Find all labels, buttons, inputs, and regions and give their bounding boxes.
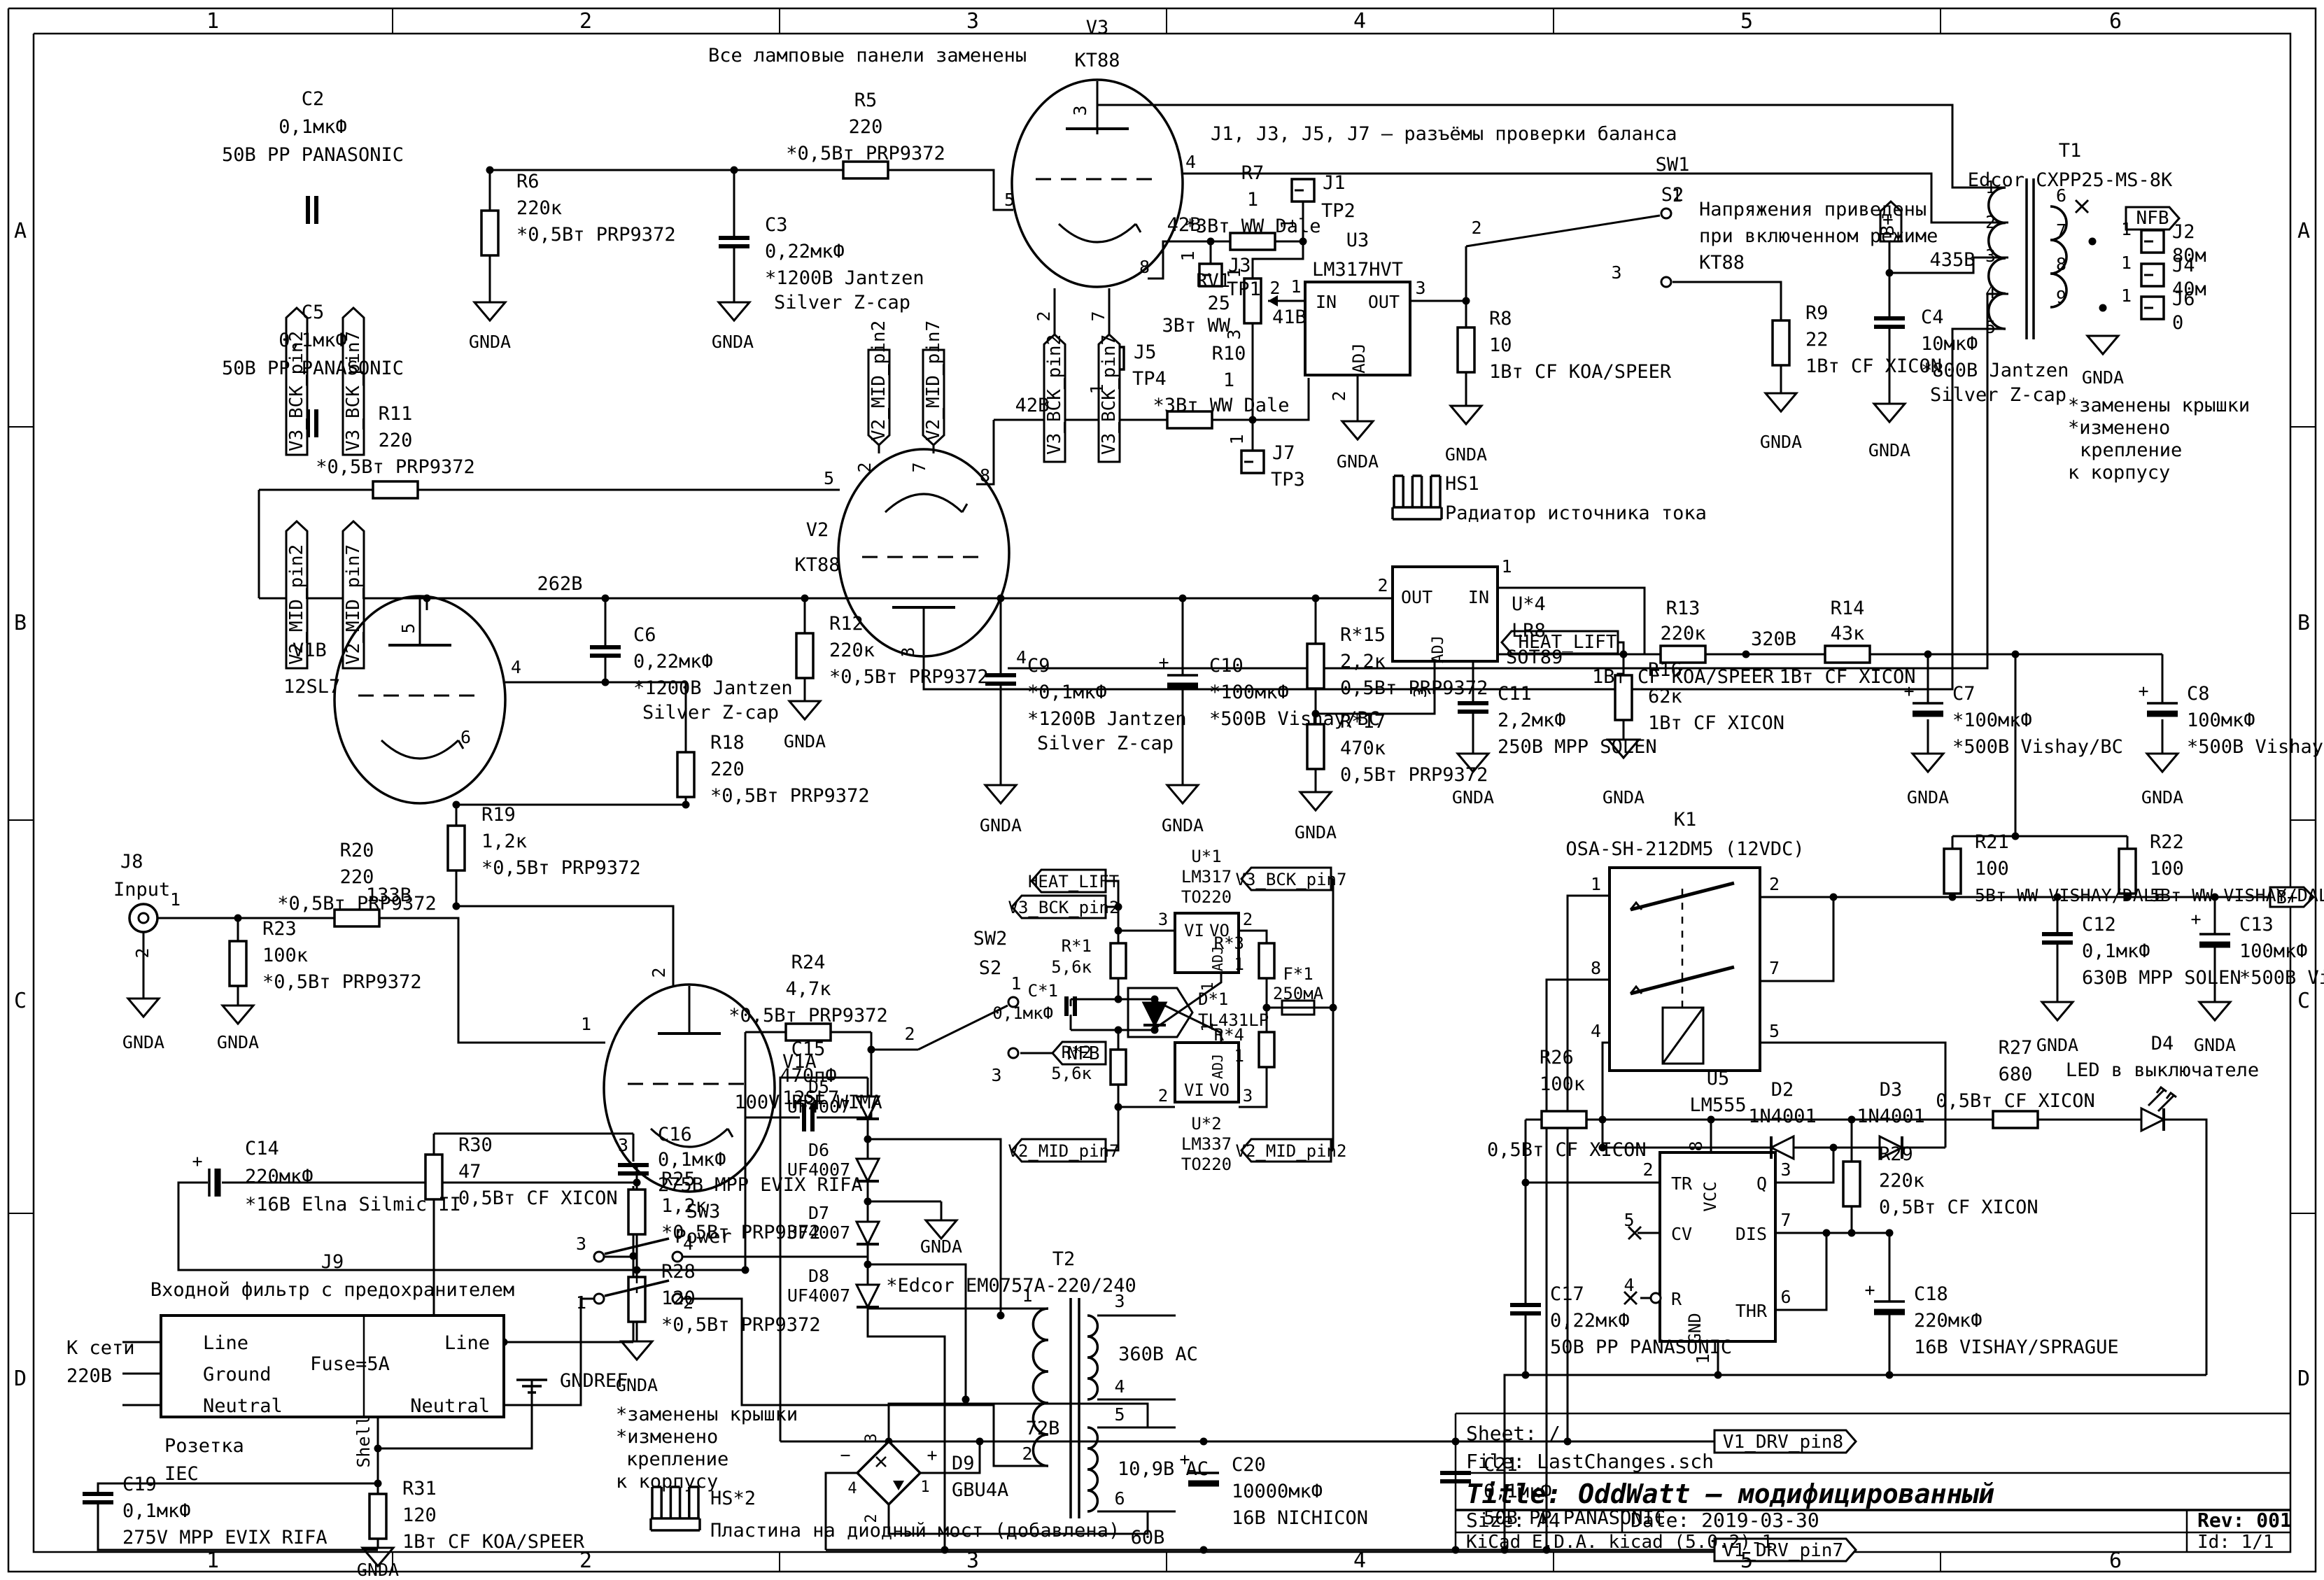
frame-row: D xyxy=(2297,1367,2310,1391)
frame-row: A xyxy=(14,219,27,244)
frame-col: 1 xyxy=(206,1549,219,1573)
c19-ref: C19 xyxy=(122,1474,157,1495)
c7-note: *500В Vishay/BC xyxy=(1952,736,2123,758)
frame-row: C xyxy=(14,989,27,1013)
note-t2-3: крепление xyxy=(626,1448,728,1470)
rx1-ref: R*1 xyxy=(1062,936,1092,956)
c2-ref: C2 xyxy=(302,88,325,110)
gnda: GNDA xyxy=(1760,432,1802,452)
c9-val: *0,1мкФ xyxy=(1027,682,1107,703)
gnda: GNDA xyxy=(2141,787,2183,807)
rx2-ref: R*2 xyxy=(1062,1043,1092,1062)
j9-fuse: Fuse=5A xyxy=(310,1353,390,1375)
frame-row: B xyxy=(14,611,27,635)
u5-p5: 5 xyxy=(1624,1210,1634,1230)
c11-val: 2,2мкФ xyxy=(1498,710,1566,731)
r14-ref: R14 xyxy=(1831,598,1865,619)
gnda: GNDA xyxy=(1868,440,1910,460)
t1-p5: 5 xyxy=(1985,317,1996,337)
r24-note: *0,5Вт PRP9372 xyxy=(728,1005,888,1027)
c7-val: *100мкФ xyxy=(1952,710,2032,731)
v2-pin8: 8 xyxy=(980,465,990,486)
hs1-ref: HS1 xyxy=(1445,473,1479,495)
c6-val: 0,22мкФ xyxy=(633,651,713,672)
c9-ref: C9 xyxy=(1027,655,1050,677)
note-volt-2: при включенном режиме xyxy=(1699,225,1938,247)
c18-ref: C18 xyxy=(1914,1283,1948,1305)
j6-val: 0 xyxy=(2172,312,2183,334)
c4-val: 10мкФ xyxy=(1921,333,1978,355)
rx3-ref: R*3 xyxy=(1214,933,1244,953)
c17-ref: C17 xyxy=(1550,1283,1584,1305)
v2-pin3: 3 xyxy=(898,647,918,657)
wl-42v-2: 42В xyxy=(1015,395,1050,416)
note-t1-3: крепление xyxy=(2080,439,2182,461)
r28-note: *0,5Вт PRP9372 xyxy=(661,1314,821,1336)
r9-val: 22 xyxy=(1805,329,1829,351)
j9-neutral-r: Neutral xyxy=(410,1395,490,1417)
d6-ref: D6 xyxy=(808,1140,829,1160)
d9-val: GBU4A xyxy=(952,1479,1008,1501)
c4-note2: Silver Z-cap xyxy=(1930,384,2066,406)
v2-pin7: 7 xyxy=(909,462,929,472)
d4-val: LED в выключателе xyxy=(2066,1059,2259,1081)
r14-note: 1Вт CF XICON xyxy=(1779,666,1915,688)
j8-val: Input xyxy=(113,879,170,901)
c20-ref: C20 xyxy=(1232,1454,1266,1476)
j7-ref: J7 xyxy=(1272,442,1295,464)
titleblock-title: Title: OddWatt – модифицированный xyxy=(1466,1479,1994,1509)
k1-p1: 1 xyxy=(1591,874,1601,894)
j8-ref: J8 xyxy=(120,851,143,873)
r29-ref: R29 xyxy=(1879,1143,1913,1165)
c5-note: 50В PP PANASONIC xyxy=(222,358,404,379)
hs2-ref: HS*2 xyxy=(710,1488,756,1509)
r30-val: 47 xyxy=(458,1161,481,1183)
d9-p3: 3 xyxy=(863,1433,880,1442)
r28-ref: R28 xyxy=(661,1261,696,1283)
r9-ref: R9 xyxy=(1805,302,1829,324)
j4-ref: J4 xyxy=(2172,255,2195,276)
gndref: GNDREF xyxy=(560,1370,628,1392)
t1-p9: 9 xyxy=(2056,287,2066,307)
gnda: GNDA xyxy=(2194,1035,2236,1055)
v2-pin5: 5 xyxy=(824,468,834,488)
c3-note1: *1200В Jantzen xyxy=(765,267,924,289)
u2-val: LM337 xyxy=(1181,1134,1232,1154)
u5-p6: 6 xyxy=(1780,1287,1791,1307)
d5-ref: D5 xyxy=(808,1077,829,1097)
c11-note: 250В MPP SOLEN xyxy=(1498,736,1657,758)
c17-note: 50В PP PANASONIC xyxy=(1550,1336,1732,1358)
c5-ref: C5 xyxy=(302,302,325,323)
wl-435v: 435В xyxy=(1929,249,1975,271)
d7-val: UF4007 xyxy=(787,1222,850,1243)
v2-val: KT88 xyxy=(794,554,840,576)
gnda: GNDA xyxy=(1603,787,1645,807)
j8-pin2: 2 xyxy=(132,947,153,958)
d6-val: UF4007 xyxy=(787,1159,850,1180)
sw3-p2: 2 xyxy=(683,1292,693,1313)
frame-col: 1 xyxy=(206,9,219,34)
c8-val: 100мкФ xyxy=(2187,710,2255,731)
rx4-ref: R*4 xyxy=(1214,1025,1244,1045)
v1b-pin5: 5 xyxy=(398,623,418,633)
u5-r: R xyxy=(1671,1289,1682,1309)
j9-val: Входной фильтр с предохранителем xyxy=(150,1279,514,1301)
d9-minus: − xyxy=(840,1445,850,1465)
j3-pin: 1 xyxy=(1178,251,1198,261)
u5-p4: 4 xyxy=(1624,1275,1634,1295)
r19-ref: R19 xyxy=(481,804,516,826)
r11-note: *0,5Вт PRP9372 xyxy=(316,456,475,478)
u3-pin1: 1 xyxy=(1290,276,1301,297)
r20-val: 220 xyxy=(340,866,374,888)
note-panels: Все ламповые панели заменены xyxy=(708,45,1027,66)
c15-ref: C15 xyxy=(791,1038,826,1060)
r16-ref: R16 xyxy=(1648,659,1682,681)
note-t1-1: *заменены крышки xyxy=(2068,395,2250,416)
sw2-pin1: 1 xyxy=(1010,973,1021,994)
j2-ref: J2 xyxy=(2172,221,2195,243)
v1a-pin2: 2 xyxy=(649,967,669,978)
c12-note: 630В MPP SOLEN xyxy=(2082,967,2241,989)
r26-val: 100к xyxy=(1540,1073,1585,1095)
u5-vcc: VCC xyxy=(1700,1181,1720,1211)
r21-ref: R21 xyxy=(1975,831,2009,853)
d8-ref: D8 xyxy=(808,1266,829,1286)
wl-41v: 41В xyxy=(1272,306,1307,328)
v1b-pin6: 6 xyxy=(460,727,471,747)
v1b-pin4: 4 xyxy=(511,657,521,677)
j9-ground: Ground xyxy=(203,1364,272,1385)
t2-val: *Edcor EM0757A-220/240 xyxy=(886,1275,1136,1297)
r17-val: 470к xyxy=(1340,738,1386,759)
u5-dis: DIS xyxy=(1735,1224,1767,1244)
r23-ref: R23 xyxy=(262,918,297,940)
note-t1-4: к корпусу xyxy=(2068,462,2170,484)
frame-col: 6 xyxy=(2109,9,2122,34)
r27-val: 680 xyxy=(1999,1064,2033,1085)
c14-note: *16В Elna Silmic II xyxy=(245,1194,461,1215)
c17-val: 0,22мкФ xyxy=(1550,1310,1630,1332)
t2-p6: 6 xyxy=(1114,1488,1125,1509)
titleblock-rev: Rev: 001 xyxy=(2197,1509,2292,1532)
iec-2: IEC xyxy=(164,1463,199,1485)
r13-ref: R13 xyxy=(1666,598,1700,619)
r11-ref: R11 xyxy=(379,403,413,425)
v1b-val: 12SL7 xyxy=(283,676,340,698)
frame-col: 3 xyxy=(966,9,979,34)
r12-note: *0,5Вт PRP9372 xyxy=(829,666,989,688)
u5-cv: CV xyxy=(1671,1224,1692,1244)
t2-p1: 1 xyxy=(1022,1285,1032,1306)
gnda: GNDA xyxy=(1337,451,1379,472)
gnda: GNDA xyxy=(920,1236,962,1257)
rv1-note: 3Вт WW xyxy=(1162,315,1230,337)
c20-plus: + xyxy=(1179,1449,1190,1469)
r6-val: 220к xyxy=(516,197,562,219)
flag-heatlift-1: HEAT_LIFT xyxy=(1028,872,1119,891)
flag-heatlift-2: HEAT_LIFT xyxy=(1519,632,1617,653)
c4-ref: C4 xyxy=(1921,306,1944,328)
r5-val: 220 xyxy=(849,116,883,138)
c16-val: 0,1мкФ xyxy=(658,1149,726,1171)
u2-vi: VI xyxy=(1184,1080,1204,1100)
j1-ref: J1 xyxy=(1323,172,1346,194)
k1-p5: 5 xyxy=(1769,1021,1780,1041)
r5-ref: R5 xyxy=(854,90,878,111)
gnda: GNDA xyxy=(2082,367,2124,388)
t1-p2: 2 xyxy=(1985,212,1996,232)
d3-ref: D3 xyxy=(1880,1079,1903,1101)
c9-note1: *1200В Jantzen xyxy=(1027,708,1187,730)
r12-val: 220к xyxy=(829,640,875,661)
t2-p2: 2 xyxy=(1022,1444,1032,1464)
r24-ref: R24 xyxy=(791,952,826,973)
c4-note1: *800В Jantzen xyxy=(1921,360,2069,381)
r20-ref: R20 xyxy=(340,840,374,861)
r14-val: 43к xyxy=(1831,623,1865,644)
sw3-ref: SW3 xyxy=(686,1201,721,1222)
wl-262v: 262В xyxy=(537,573,582,595)
titleblock-date: Date: 2019-03-30 xyxy=(1631,1509,1819,1532)
c18-note: 16В VISHAY/SPRAGUE xyxy=(1914,1336,2119,1358)
u4-pin2: 2 xyxy=(1377,575,1388,595)
u1-ref: U*1 xyxy=(1191,847,1221,866)
d8-val: UF4007 xyxy=(787,1285,850,1306)
j9-line-l: Line xyxy=(203,1332,248,1354)
t2-w1: 360В AC xyxy=(1118,1343,1198,1365)
t1-p1: 1 xyxy=(1985,177,1996,197)
d4-ref: D4 xyxy=(2151,1033,2174,1054)
t2-p3: 3 xyxy=(1114,1291,1125,1311)
u5-p8: 8 xyxy=(1686,1141,1706,1151)
flag-bplus-1: B+ xyxy=(1878,214,1899,236)
c13-plus: + xyxy=(2190,909,2201,929)
v3-pin8: 8 xyxy=(1139,257,1150,277)
r10-note: *3Вт WW Dale xyxy=(1153,395,1289,416)
j7-tp: TP3 xyxy=(1271,469,1305,491)
u5-tr: TR xyxy=(1671,1173,1693,1194)
c5-val: 0,1мкФ xyxy=(279,330,347,351)
j5-pin: 1 xyxy=(1087,383,1107,394)
u1-val: LM317 xyxy=(1181,867,1232,887)
c10-ref: C10 xyxy=(1209,655,1244,677)
c6-note1: *1200В Jantzen xyxy=(633,677,793,699)
note-t2-4: к корпусу xyxy=(616,1471,718,1493)
d2-ref: D2 xyxy=(1771,1079,1794,1101)
gnda: GNDA xyxy=(469,332,511,352)
gnda: GNDA xyxy=(357,1560,399,1580)
r23-note: *0,5Вт PRP9372 xyxy=(262,971,422,993)
flag-v2mid7-c: V2_MID_pin7 xyxy=(1008,1141,1120,1161)
r22-val: 100 xyxy=(2150,858,2184,880)
sw1-pin1: 1 xyxy=(1671,185,1682,206)
gnda: GNDA xyxy=(980,815,1022,835)
v3-pin4: 4 xyxy=(1185,152,1196,172)
r19-note: *0,5Вт PRP9372 xyxy=(481,857,641,879)
frame-col: 5 xyxy=(1740,9,1753,34)
u4-in: IN xyxy=(1468,587,1489,607)
u1-pin2: 2 xyxy=(1243,910,1253,929)
c14-ref: C14 xyxy=(245,1138,279,1159)
r6-ref: R6 xyxy=(516,171,540,192)
r20-note: *0,5Вт PRP9372 xyxy=(277,893,437,915)
r16-val: 62к xyxy=(1648,686,1682,707)
v1a-pin1: 1 xyxy=(581,1014,591,1034)
frame-col: 3 xyxy=(966,1549,979,1573)
v2-ref: V2 xyxy=(806,519,829,541)
v3-pin3: 3 xyxy=(1070,105,1090,115)
u5-q: Q xyxy=(1756,1173,1767,1194)
j9-shell: Shell xyxy=(353,1415,374,1467)
gnda: GNDA xyxy=(1452,787,1494,807)
sw3-p3: 3 xyxy=(576,1234,586,1254)
t1-p6: 6 xyxy=(2056,185,2066,206)
wl-320v: 320В xyxy=(1751,628,1796,650)
note-t1-2: *изменено xyxy=(2068,417,2170,439)
u3-val: LM317HVT xyxy=(1312,259,1403,281)
u2-pin3: 3 xyxy=(1243,1086,1253,1106)
c6-ref: C6 xyxy=(633,624,656,646)
t2-w2: 10,9В AC xyxy=(1118,1458,1209,1480)
u5-p2: 2 xyxy=(1642,1159,1653,1180)
t1-p4: 4 xyxy=(1985,282,1996,302)
dx1-ref: D*1 xyxy=(1198,989,1228,1009)
gnda: GNDA xyxy=(1907,787,1949,807)
u4-ref: U*4 xyxy=(1512,593,1546,615)
r29-note: 0,5Вт CF XICON xyxy=(1879,1197,2038,1218)
titleblock-file: File: LastChanges.sch xyxy=(1466,1450,1714,1473)
j9-ref: J9 xyxy=(321,1251,344,1273)
note-t2-1: *заменены крышки xyxy=(616,1404,798,1425)
u2-adj: ADJ xyxy=(1209,1054,1226,1079)
frame-col: 4 xyxy=(1353,9,1366,34)
c18-plus: + xyxy=(1864,1280,1875,1300)
net-label: К сети xyxy=(66,1337,135,1359)
sw3-p1: 1 xyxy=(576,1292,586,1313)
kicad-schematic-page: Все ламповые панели замененыJ1, J3, J5, … xyxy=(0,0,2324,1580)
r30-note: 0,5Вт CF XICON xyxy=(458,1187,618,1209)
c11-ref: C11 xyxy=(1498,683,1532,705)
r13-val: 220к xyxy=(1660,623,1705,644)
r17-ref: R*17 xyxy=(1340,711,1386,733)
wl-42v-1: 42В xyxy=(1167,214,1202,236)
c19-val: 0,1мкФ xyxy=(122,1500,191,1522)
titleblock-sheet: Sheet: / xyxy=(1466,1422,1561,1445)
gnda: GNDA xyxy=(1445,444,1487,465)
rx2-val: 5,6к xyxy=(1051,1064,1092,1083)
v2-pin4: 4 xyxy=(1016,647,1027,668)
r11-val: 220 xyxy=(379,430,413,451)
note-balance: J1, J3, J5, J7 – разъёмы проверки баланс… xyxy=(1211,123,1677,145)
flag-v3bck7-c: V3_BCK_pin7 xyxy=(1236,870,1347,889)
sw2-ref: SW2 xyxy=(973,928,1008,950)
j5-tp: TP4 xyxy=(1132,368,1167,390)
frame-col: 6 xyxy=(2109,1549,2122,1573)
r15-val: 2,2к xyxy=(1340,651,1386,672)
k1-val: OSA-SH-212DM5 (12VDC) xyxy=(1565,838,1804,860)
sw2-val: S2 xyxy=(979,957,1002,979)
c20-note: 16В NICHICON xyxy=(1232,1507,1368,1529)
frame-row: B xyxy=(2297,611,2310,635)
r16-note: 1Вт CF XICON xyxy=(1648,712,1784,734)
r19-val: 1,2к xyxy=(481,831,527,852)
r8-val: 10 xyxy=(1489,334,1512,356)
hs2-note: Пластина на диодный мост (добавлена) xyxy=(710,1520,1120,1542)
sw1-pin3: 3 xyxy=(1611,262,1621,283)
sw2-pin3: 3 xyxy=(991,1065,1001,1085)
r23-val: 100к xyxy=(262,945,308,966)
t2-p4: 4 xyxy=(1114,1376,1125,1397)
k1-p2: 2 xyxy=(1769,874,1780,894)
r31-ref: R31 xyxy=(402,1478,437,1500)
c13-ref: C13 xyxy=(2239,914,2274,936)
flag-v2mid2-b: V2_MID_pin2 xyxy=(868,320,889,441)
r24-val: 4,7к xyxy=(785,978,831,1000)
t1-p7: 7 xyxy=(2056,220,2066,241)
v3-pin2: 2 xyxy=(1034,311,1054,321)
gnda: GNDA xyxy=(1295,822,1337,842)
r7-note: *3Вт WW Dale xyxy=(1184,216,1321,237)
cx1-ref: C*1 xyxy=(1028,981,1058,1001)
frame-row: D xyxy=(14,1367,27,1391)
r27-note: 0,5Вт CF XICON xyxy=(1936,1090,2095,1112)
k1-p4: 4 xyxy=(1591,1021,1601,1041)
k1-ref: K1 xyxy=(1674,809,1697,831)
r22-ref: R22 xyxy=(2150,831,2184,853)
r27-ref: R27 xyxy=(1999,1037,2033,1059)
r7-ref: R7 xyxy=(1241,162,1265,184)
j9-neutral-l: Neutral xyxy=(203,1395,283,1417)
u2-fp: TO220 xyxy=(1181,1155,1232,1174)
c12-ref: C12 xyxy=(2082,914,2116,936)
c14-val: 220мкФ xyxy=(245,1166,314,1187)
v3-val: KT88 xyxy=(1074,50,1120,71)
c13-note: *500В Vishay/BC xyxy=(2239,967,2324,989)
note-t2-2: *изменено xyxy=(616,1426,718,1448)
j7-pin: 1 xyxy=(1227,434,1247,444)
u3-ref: U3 xyxy=(1346,230,1369,251)
titleblock-tool: KiCad E.D.A. kicad (5.0.2)-1 xyxy=(1466,1532,1773,1553)
t1-p8: 8 xyxy=(2056,254,2066,274)
r13-note: 1Вт CF KOA/SPEER xyxy=(1592,666,1775,688)
u5-p7: 7 xyxy=(1780,1210,1791,1230)
gnda: GNDA xyxy=(784,731,826,752)
c7-ref: C7 xyxy=(1952,683,1976,705)
r26-note: 0,5Вт CF XICON xyxy=(1487,1139,1647,1161)
frame-row: C xyxy=(2297,989,2310,1013)
u3-in: IN xyxy=(1316,292,1337,312)
r6-note: *0,5Вт PRP9372 xyxy=(516,224,676,246)
r31-val: 120 xyxy=(402,1504,437,1526)
u2-vo: VO xyxy=(1209,1080,1230,1100)
v3-pin7: 7 xyxy=(1088,311,1108,321)
rv1-val: 25 xyxy=(1207,292,1230,314)
v3-pin5: 5 xyxy=(1004,190,1015,210)
c13-val: 100мкФ xyxy=(2239,940,2308,962)
t2-ref: T2 xyxy=(1052,1248,1076,1270)
cx1-val: 0,1мкФ xyxy=(992,1003,1053,1023)
r7-val: 1 xyxy=(1247,189,1258,211)
d9-p4: 4 xyxy=(847,1480,857,1497)
gnda: GNDA xyxy=(1162,815,1204,835)
r15-ref: R*15 xyxy=(1340,624,1386,646)
u5-val: LM555 xyxy=(1689,1094,1746,1116)
titleblock-size: Size: A4 xyxy=(1466,1509,1561,1532)
u1-pin3: 3 xyxy=(1158,910,1168,929)
